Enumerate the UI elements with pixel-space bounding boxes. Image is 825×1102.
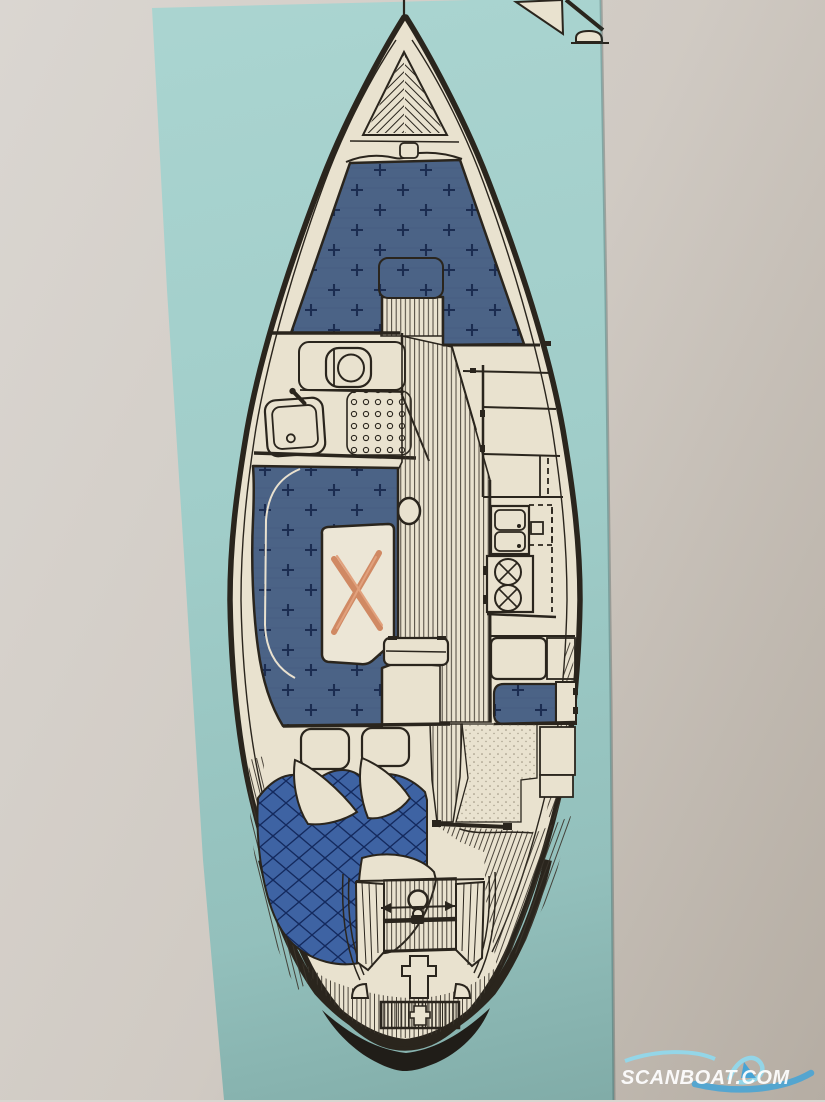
cockpit-bench-port [356, 882, 384, 970]
head-toilet [326, 348, 371, 387]
mast-post [398, 498, 420, 524]
watermark-wave-top [625, 1052, 715, 1061]
adjacent-sailplan-fragment [516, 0, 609, 43]
watermark: SCANBOAT.COM [597, 1030, 825, 1102]
v-berth-filler-cushion [379, 258, 443, 298]
boat-layout-drawing [0, 0, 825, 1100]
chart-table [491, 638, 546, 679]
watermark-text: SCANBOAT.COM [621, 1067, 790, 1089]
paper-edge-shadow [601, 0, 614, 1100]
companionway-step [384, 636, 448, 665]
nav-seat [494, 684, 556, 724]
v-berth-walkway [381, 296, 443, 336]
aft-lockers [540, 727, 575, 797]
galley-stove [483, 556, 533, 612]
quarter-berth-pillow [301, 729, 349, 769]
galley-double-sink [491, 506, 529, 554]
